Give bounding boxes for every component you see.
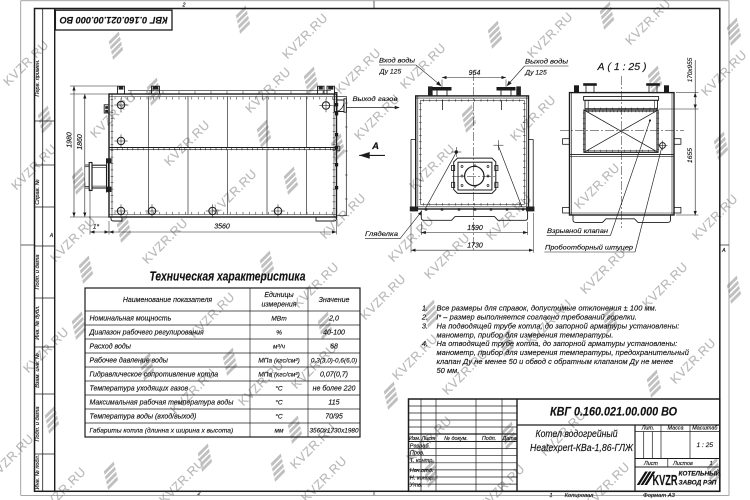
svg-text:1*: 1* — [93, 224, 100, 231]
svg-text:измерения: измерения — [261, 302, 296, 309]
svg-text:KVZR: KVZR — [653, 472, 678, 489]
svg-text:№ докум.: № докум. — [444, 436, 468, 442]
svg-text:68: 68 — [330, 343, 338, 350]
svg-text:%: % — [276, 329, 282, 336]
svg-text:Листов: Листов — [672, 461, 693, 467]
svg-text:954: 954 — [469, 70, 481, 77]
svg-text:А: А — [371, 141, 379, 152]
svg-text:1 : 25: 1 : 25 — [697, 442, 714, 449]
svg-text:1730: 1730 — [467, 243, 483, 250]
svg-text:Подп. и дата: Подп. и дата — [35, 406, 41, 441]
svg-text:МПа (кгс/см²): МПа (кгс/см²) — [258, 357, 300, 364]
svg-text:Взрывной клапан: Взрывной клапан — [547, 227, 608, 235]
svg-text:1655: 1655 — [687, 148, 694, 163]
svg-text:А: А — [721, 248, 726, 254]
svg-text:1980: 1980 — [66, 132, 73, 148]
svg-text:Значение: Значение — [319, 297, 350, 304]
svg-text:Инв. № подл.: Инв. № подл. — [35, 455, 41, 490]
svg-text:клапан Ду не менее 50 и обвод: клапан Ду не менее 50 и обвод с обратным… — [437, 357, 674, 366]
svg-text:°С: °С — [275, 384, 283, 392]
svg-text:Инв. № дубл.: Инв. № дубл. — [35, 305, 41, 339]
svg-text:манометр, прибор для измерения: манометр, прибор для измерения температу… — [437, 330, 614, 339]
svg-text:Габариты котла (длинна х ширин: Габариты котла (длинна х ширина х высота… — [90, 426, 234, 434]
svg-text:На отводящей трубе котла, до з: На отводящей трубе котла, до запорной ар… — [437, 339, 678, 348]
svg-text:°С: °С — [275, 398, 283, 406]
svg-text:1590: 1590 — [467, 225, 483, 232]
svg-text:°С: °С — [275, 412, 283, 420]
svg-text:На подводящей трубе котла, до: На подводящей трубе котла, до запорной а… — [437, 321, 680, 330]
svg-text:Н. контр.: Н. контр. — [410, 475, 435, 481]
svg-text:А ( 1 : 25 ): А ( 1 : 25 ) — [596, 61, 646, 73]
svg-text:2: 2 — [196, 491, 200, 497]
svg-text:Копировал: Копировал — [565, 493, 595, 499]
svg-text:Масса: Масса — [668, 426, 684, 432]
svg-text:Утв.: Утв. — [409, 483, 423, 489]
svg-text:115: 115 — [328, 399, 339, 406]
svg-text:манометр, прибор для измерения: манометр, прибор для измерения температу… — [437, 348, 689, 357]
svg-text:Т. контр.: Т. контр. — [410, 458, 434, 464]
svg-text:Наименование показателя: Наименование показателя — [123, 297, 213, 304]
svg-text:Нач.отд.: Нач.отд. — [410, 468, 434, 474]
svg-text:170х955: 170х955 — [687, 57, 694, 82]
svg-text:Гляделка: Гляделка — [365, 230, 398, 238]
svg-text:КОТЕЛЬНЫЙ: КОТЕЛЬНЫЙ — [679, 469, 721, 478]
svg-text:ЗАВОД РЭП: ЗАВОД РЭП — [679, 480, 717, 487]
svg-text:Выход газов: Выход газов — [353, 95, 399, 103]
svg-text:Формат А3: Формат А3 — [643, 493, 675, 499]
svg-text:Подп. и дата: Подп. и дата — [35, 254, 41, 289]
svg-text:Максимальная рабочая температу: Максимальная рабочая температура воды — [90, 398, 235, 406]
svg-text:50 мм.: 50 мм. — [437, 366, 460, 375]
svg-text:Техническая характеристика: Техническая характеристика — [150, 269, 306, 284]
svg-text:м³/ч: м³/ч — [273, 343, 286, 350]
svg-text:2.: 2. — [421, 312, 428, 321]
svg-text:2,0: 2,0 — [328, 315, 339, 322]
svg-text:1: 1 — [549, 493, 552, 499]
svg-text:2: 2 — [181, 3, 185, 9]
svg-text:Температура воды (вход/выход): Температура воды (вход/выход) — [90, 412, 197, 420]
svg-text:Все размеры для справок, допус: Все размеры для справок, допустимые откл… — [437, 303, 657, 312]
svg-text:1.: 1. — [422, 303, 428, 312]
svg-text:не более 220: не более 220 — [313, 384, 356, 392]
svg-text:0,07(0,7): 0,07(0,7) — [320, 371, 348, 378]
svg-text:Рабочее давление воды: Рабочее давление воды — [90, 356, 169, 364]
svg-text:Разраб.: Разраб. — [410, 443, 430, 449]
svg-text:Температура уходящих газов: Температура уходящих газов — [90, 384, 189, 392]
svg-text:Взам. инв. №: Взам. инв. № — [35, 353, 41, 388]
svg-text:Подп.: Подп. — [482, 436, 496, 442]
svg-text:l* – размер выполняется соглас: l* – размер выполняется согласно требова… — [437, 312, 637, 321]
svg-text:Пробоотборный штуцер: Пробоотборный штуцер — [545, 244, 633, 252]
svg-text:70/95: 70/95 — [325, 413, 343, 420]
svg-text:Расход воды: Расход воды — [90, 342, 132, 350]
svg-text:Пров.: Пров. — [410, 450, 425, 456]
svg-text:МВт: МВт — [271, 315, 287, 322]
svg-text:Дата: Дата — [501, 436, 516, 442]
svg-text:Heatexpert-КВа-1,86-ГЛЖ: Heatexpert-КВа-1,86-ГЛЖ — [530, 443, 634, 454]
svg-text:Вход воды: Вход воды — [379, 57, 415, 65]
svg-text:4.: 4. — [422, 339, 428, 348]
svg-text:0,3(3,0)-0,6(6,0): 0,3(3,0)-0,6(6,0) — [311, 357, 357, 364]
svg-text:Ду 125: Ду 125 — [379, 68, 402, 75]
svg-text:Справ. №: Справ. № — [35, 179, 41, 204]
svg-text:Перв. примен.: Перв. примен. — [35, 59, 41, 96]
svg-text:Выход воды: Выход воды — [525, 58, 568, 66]
svg-text:КВГ 0.160.021.00.000 ВО: КВГ 0.160.021.00.000 ВО — [550, 405, 678, 419]
svg-text:мм: мм — [274, 427, 284, 434]
svg-text:1: 1 — [709, 461, 712, 467]
svg-text:Лист: Лист — [643, 461, 658, 467]
svg-text:Масштаб: Масштаб — [692, 426, 718, 432]
svg-text:40-100: 40-100 — [323, 329, 345, 336]
svg-text:МПа (кгс/см²): МПа (кгс/см²) — [258, 371, 300, 378]
svg-text:Диапазон рабочего регулировани: Диапазон рабочего регулирования — [89, 328, 205, 336]
svg-text:Лит.: Лит. — [641, 426, 655, 432]
svg-text:Гидравлическое сопротивление к: Гидравлическое сопротивление котла — [90, 370, 219, 378]
svg-text:Котел водогрейный: Котел водогрейный — [536, 429, 618, 440]
svg-text:Единицы: Единицы — [264, 291, 294, 299]
svg-text:Номинальная мощность: Номинальная мощность — [90, 315, 172, 322]
svg-text:3.: 3. — [422, 321, 428, 330]
svg-text:Ду 125: Ду 125 — [524, 69, 547, 76]
svg-text:1860: 1860 — [77, 134, 84, 150]
svg-text:А: А — [49, 233, 54, 239]
svg-text:КВГ 0.160.021.00.000 ВО: КВГ 0.160.021.00.000 ВО — [60, 15, 168, 25]
svg-text:Лист: Лист — [421, 436, 436, 442]
svg-text:3560х1730х1980: 3560х1730х1980 — [309, 427, 358, 434]
svg-text:3560: 3560 — [214, 224, 230, 231]
svg-text:Изм.: Изм. — [409, 436, 421, 442]
